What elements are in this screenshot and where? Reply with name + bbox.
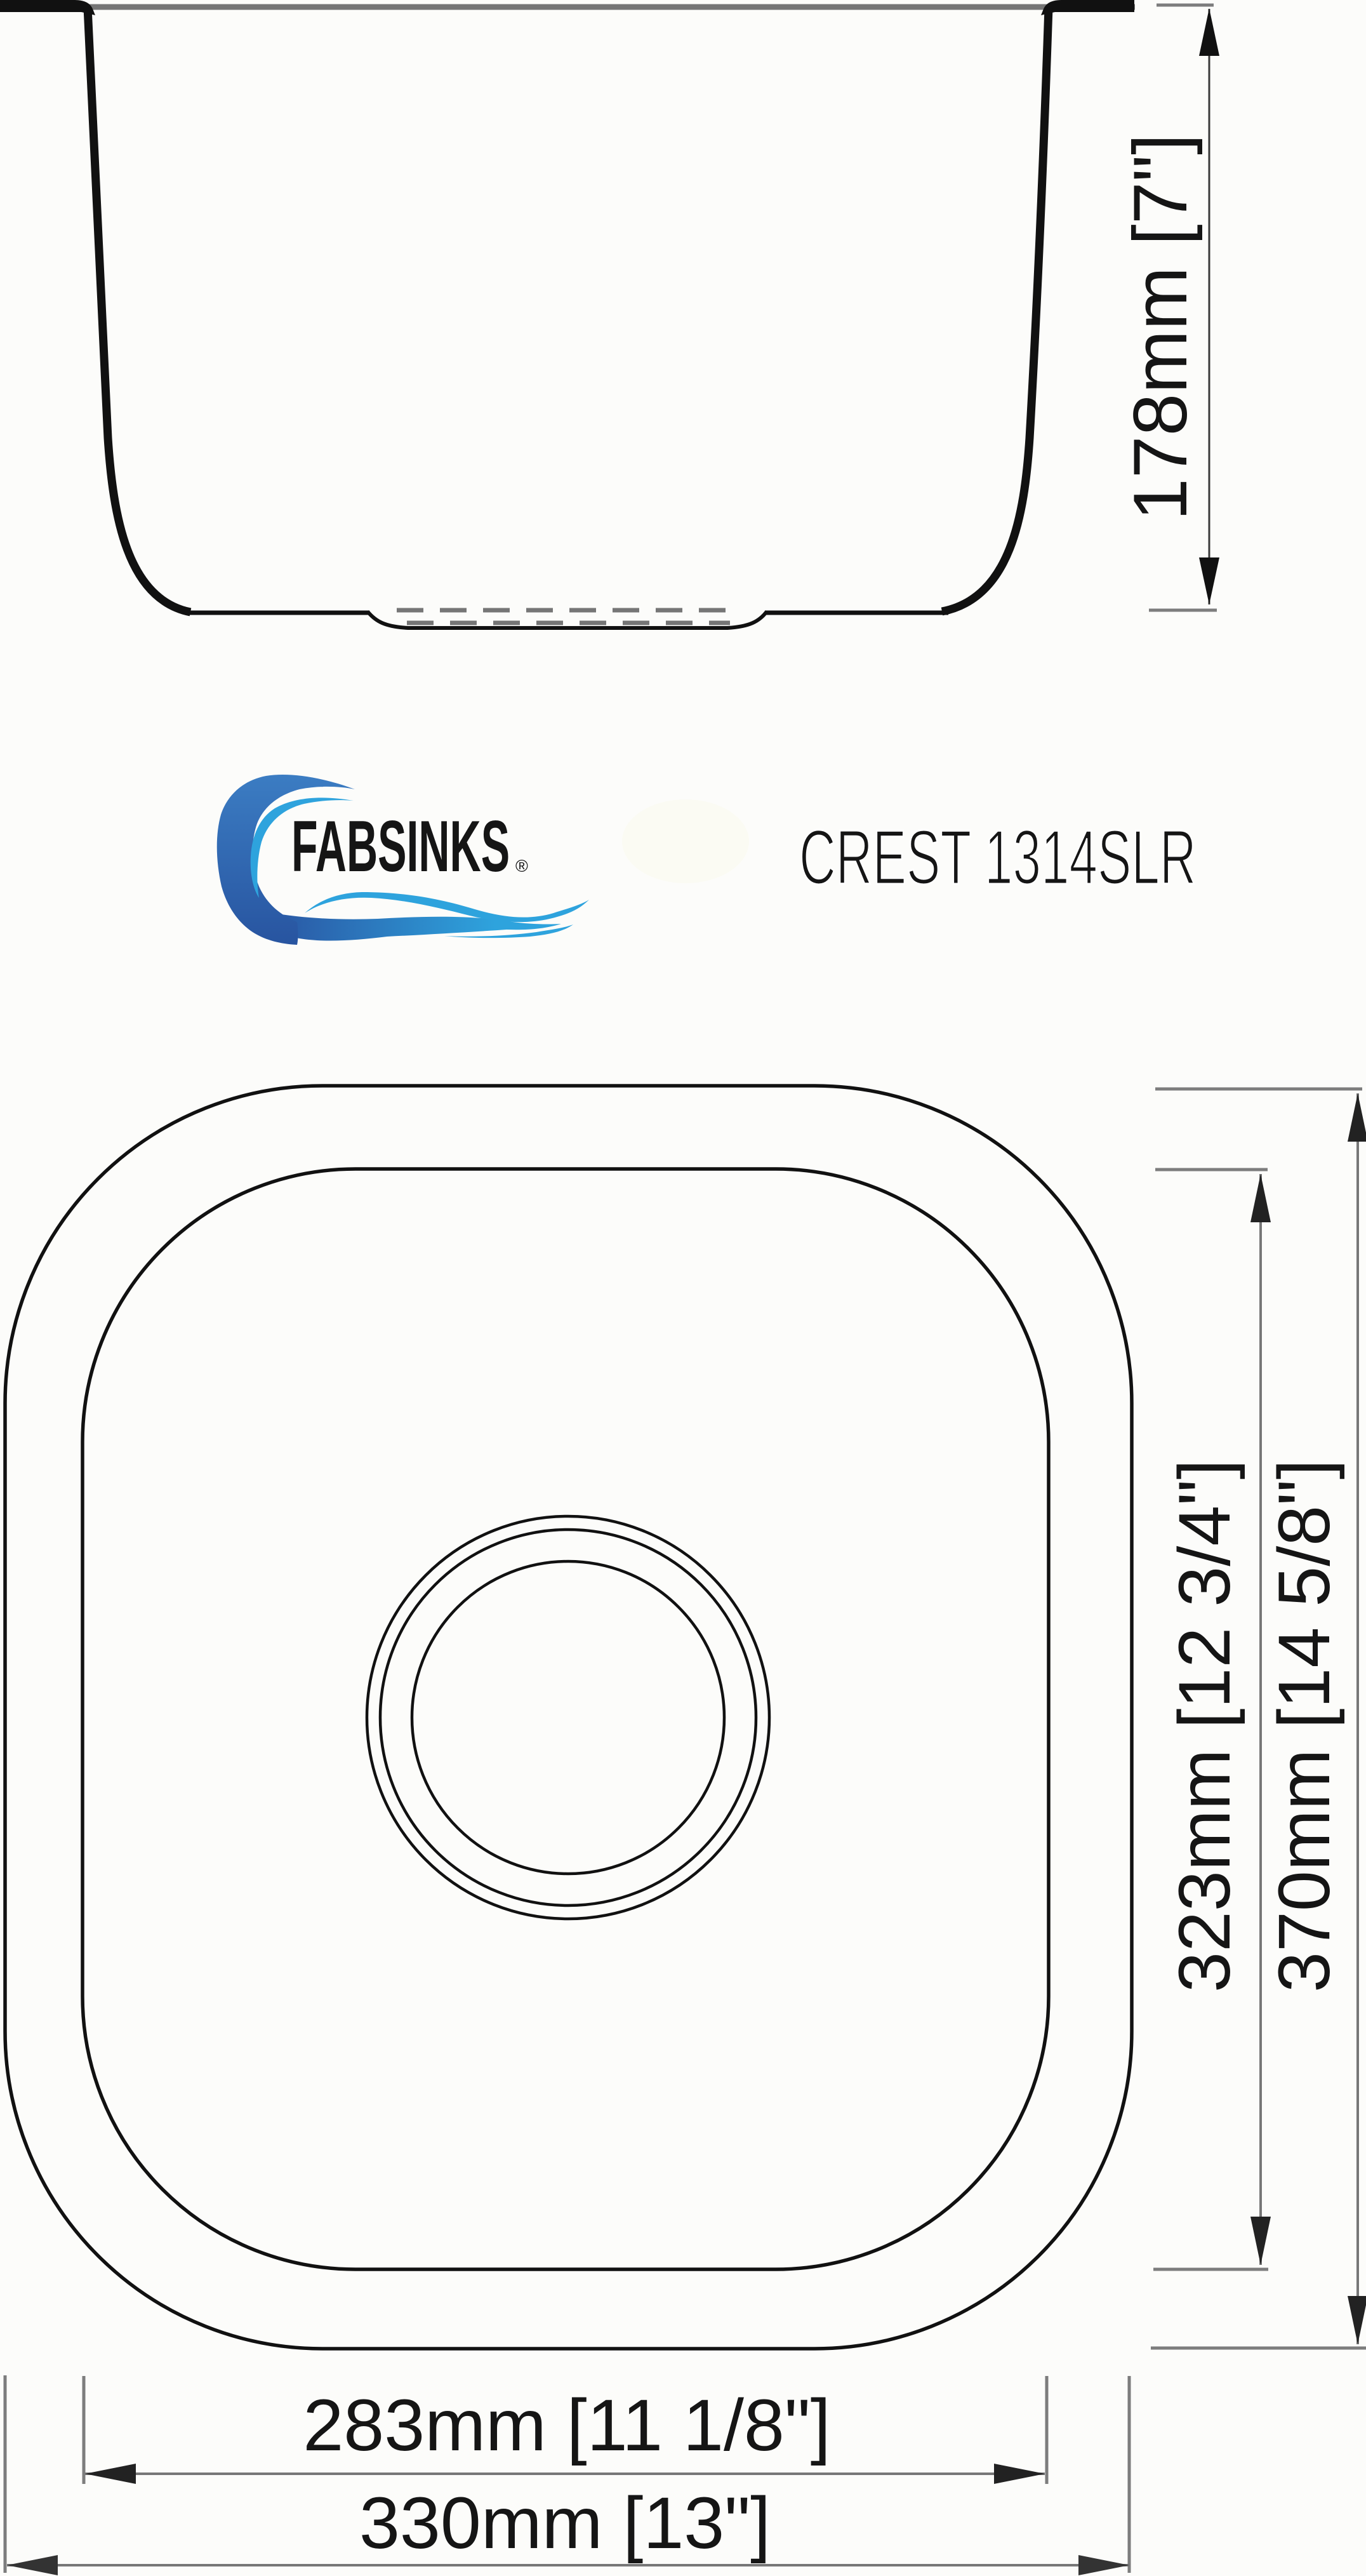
svg-text:178mm [7"]: 178mm [7"] [1118,134,1203,521]
svg-text:330mm [13"]: 330mm [13"] [359,2483,771,2564]
svg-text:370mm [14 5/8"]: 370mm [14 5/8"] [1264,1459,1345,1992]
svg-text:323mm [12 3/4"]: 323mm [12 3/4"] [1164,1459,1245,1992]
svg-text:®: ® [515,857,528,876]
svg-text:CREST 1314SLR: CREST 1314SLR [799,814,1197,900]
svg-text:FABSINKS: FABSINKS [291,806,510,886]
svg-text:283mm [11 1/8"]: 283mm [11 1/8"] [303,2385,830,2466]
